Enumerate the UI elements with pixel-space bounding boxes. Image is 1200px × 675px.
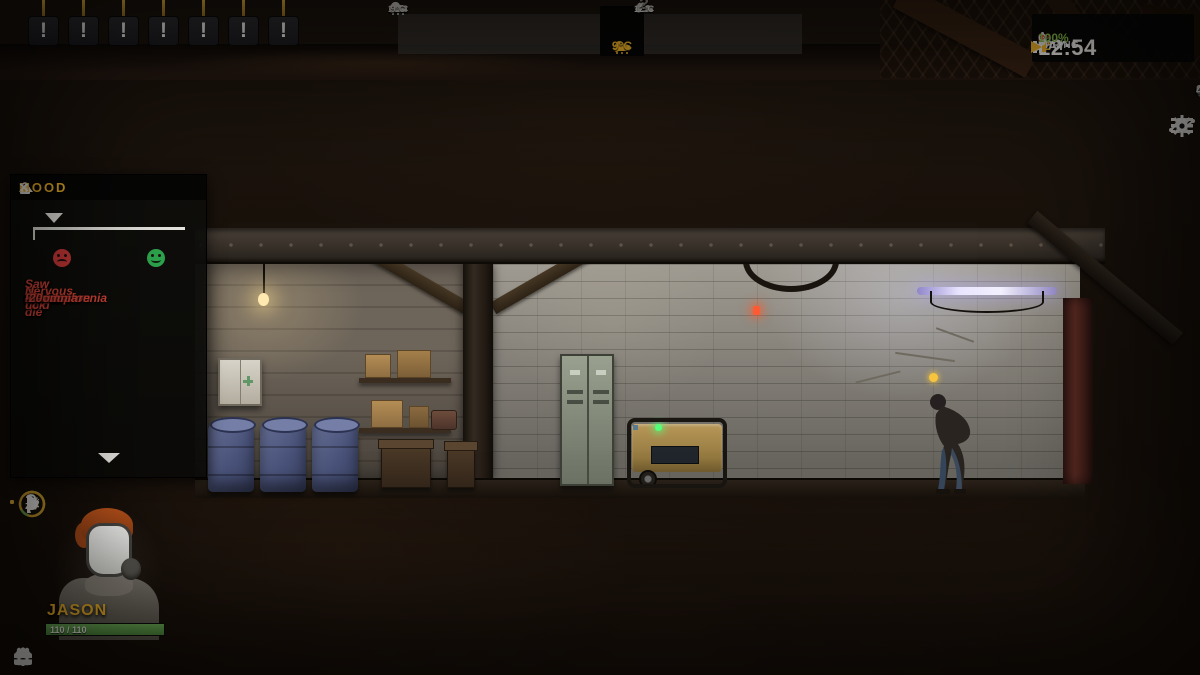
mood-scale-marker	[45, 213, 63, 223]
alert-stem	[42, 0, 45, 17]
shelf-board	[359, 378, 451, 383]
close-icon[interactable]: ×	[19, 181, 29, 195]
cabinet-door-split	[240, 360, 241, 404]
power-generator[interactable]	[627, 418, 727, 488]
alert-notification[interactable]: !	[187, 0, 221, 48]
red-door-frame	[1063, 298, 1093, 484]
exclamation-icon: !	[228, 16, 259, 46]
alert-notification[interactable]: !	[67, 0, 101, 48]
water-barrel[interactable]	[312, 422, 358, 492]
mood-indicator-dot	[929, 373, 938, 382]
survivor-character[interactable]	[918, 390, 988, 495]
mood-scale	[33, 213, 185, 273]
exclamation-icon: !	[108, 16, 139, 46]
exclamation-icon: !	[28, 16, 59, 46]
health-value: 110 / 110	[50, 625, 87, 635]
crate-lid	[378, 439, 434, 449]
alert-stem	[242, 0, 245, 17]
storage-box	[365, 354, 391, 378]
rivet-row	[195, 242, 1105, 248]
medicine-cabinet[interactable]	[218, 358, 262, 406]
storage-box	[371, 400, 403, 428]
alert-notification[interactable]: !	[147, 0, 181, 48]
water-barrel[interactable]	[208, 422, 254, 492]
medical-cross-icon	[243, 376, 253, 386]
generator-frame	[627, 418, 727, 488]
alert-stem	[122, 0, 125, 17]
mood-panel: MOOD × Saw friend die-75 Saw friend die-…	[10, 174, 207, 478]
sad-face-icon	[53, 249, 71, 267]
exclamation-icon: !	[188, 16, 219, 46]
mood-scale-ruler	[33, 227, 185, 239]
alert-stem	[82, 0, 85, 17]
family-tab[interactable]	[12, 646, 34, 668]
double-locker[interactable]	[560, 354, 614, 486]
indicator-lamp	[753, 306, 760, 315]
locker-plate	[596, 370, 606, 375]
storage-box	[409, 406, 429, 428]
exclamation-icon: !	[268, 16, 299, 46]
locker-door-split	[587, 356, 589, 484]
light-cord	[263, 264, 265, 294]
character-tabs: ♥	[12, 644, 192, 670]
settings-gear-icon[interactable]	[1170, 114, 1194, 138]
people-icon	[14, 647, 32, 667]
weather-history-bar: 17°C 14°C 16°C 16°C 19°C 9°C	[398, 14, 600, 54]
exclamation-icon: !	[148, 16, 179, 46]
locker-plate	[570, 370, 580, 375]
alert-stem	[162, 0, 165, 17]
exclamation-icon: !	[68, 16, 99, 46]
locker-vent	[593, 390, 609, 394]
crate-lid	[444, 441, 478, 451]
storage-box	[397, 350, 431, 378]
gas-mask-filter	[121, 558, 141, 580]
light-bulb	[258, 293, 269, 306]
weather-forecast-bar: 12°C ? ? ? ?	[644, 14, 802, 54]
game-screen: ! ! ! ! ! ! ! 17°C 14°C 16°C 16°C 19°C 9…	[0, 0, 1200, 675]
happy-face-icon	[147, 249, 165, 267]
alert-notification[interactable]: !	[267, 0, 301, 48]
storage-crate[interactable]	[381, 446, 431, 488]
scroll-down-icon[interactable]	[98, 453, 120, 463]
shelf-jars	[431, 410, 457, 430]
character-name: JASON	[47, 602, 107, 620]
water-barrel[interactable]	[260, 422, 306, 492]
shower-icon	[27, 495, 39, 510]
alert-notification[interactable]: !	[107, 0, 141, 48]
light-cable	[930, 291, 1044, 313]
locker-vent	[567, 390, 583, 394]
hygiene-need	[10, 488, 48, 520]
oxygen-value: 100%	[1038, 31, 1069, 45]
mood-panel-header: MOOD ×	[11, 175, 206, 200]
locker-vent	[593, 400, 609, 404]
alert-notification[interactable]: !	[27, 0, 61, 48]
bunker-ceiling-beam	[195, 228, 1105, 264]
fuel-amount: 4	[1196, 82, 1200, 97]
storage-crate[interactable]	[447, 448, 475, 488]
unknown-weather-icon: ?	[639, 0, 649, 14]
clock-panel: DAY2 SPRING 12:54 8° O₂ 100%	[1032, 14, 1194, 62]
health-bar: 110 / 110	[45, 623, 165, 636]
locker-vent	[567, 400, 583, 404]
alert-stem	[282, 0, 285, 17]
alert-notification[interactable]: !	[227, 0, 261, 48]
menu-bar: ?	[1066, 112, 1194, 140]
resource-bar: 89 69 4	[1048, 76, 1196, 102]
alert-stem	[202, 0, 205, 17]
